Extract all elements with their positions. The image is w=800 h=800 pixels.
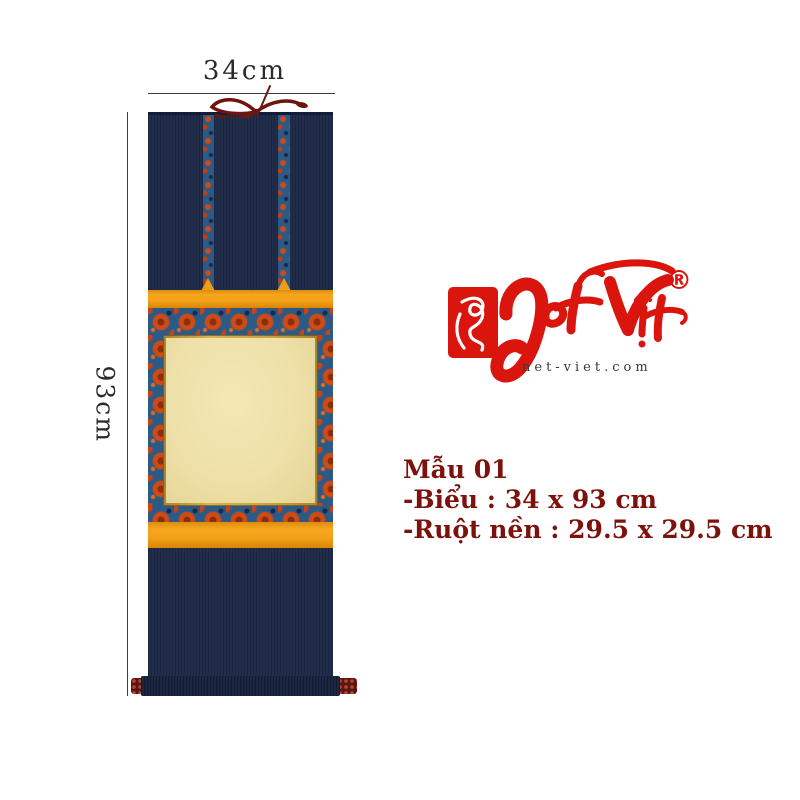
brocade-hanging-strip-left bbox=[203, 115, 214, 293]
product-specs: Mẫu 01 -Biểu : 34 x 93 cm -Ruột nền : 29… bbox=[403, 455, 773, 545]
height-dimension-label: 93cm bbox=[91, 366, 120, 436]
website-text: net-viet.com bbox=[522, 360, 652, 375]
height-dimension-line bbox=[127, 112, 128, 696]
lower-gold-band bbox=[148, 522, 333, 548]
blank-cream-panel bbox=[166, 338, 315, 503]
seal-stamp-icon bbox=[448, 287, 498, 358]
scroll-top-navy-section bbox=[148, 112, 333, 290]
roller-knob-right bbox=[337, 678, 357, 694]
net-viet-logo bbox=[440, 256, 696, 400]
scroll-bottom-navy-section bbox=[148, 548, 333, 676]
hanging-scroll bbox=[148, 112, 333, 696]
right-brocade-border bbox=[318, 335, 333, 506]
left-brocade-border bbox=[148, 335, 163, 506]
lower-brocade-band bbox=[148, 506, 333, 522]
product-image: 34cm 93cm bbox=[0, 0, 800, 800]
upper-brocade-band bbox=[148, 308, 333, 335]
brocade-hanging-strip-right bbox=[278, 115, 290, 293]
bottom-roller bbox=[141, 676, 340, 696]
size-spec: -Biểu : 34 x 93 cm bbox=[403, 485, 773, 515]
registered-trademark-icon: ® bbox=[666, 266, 692, 296]
gold-trim-frame bbox=[163, 335, 318, 506]
ribbon-bow-icon bbox=[200, 82, 310, 118]
upper-gold-band bbox=[148, 290, 333, 308]
model-label: Mẫu 01 bbox=[403, 455, 773, 485]
core-spec: -Ruột nền : 29.5 x 29.5 cm bbox=[403, 515, 773, 545]
